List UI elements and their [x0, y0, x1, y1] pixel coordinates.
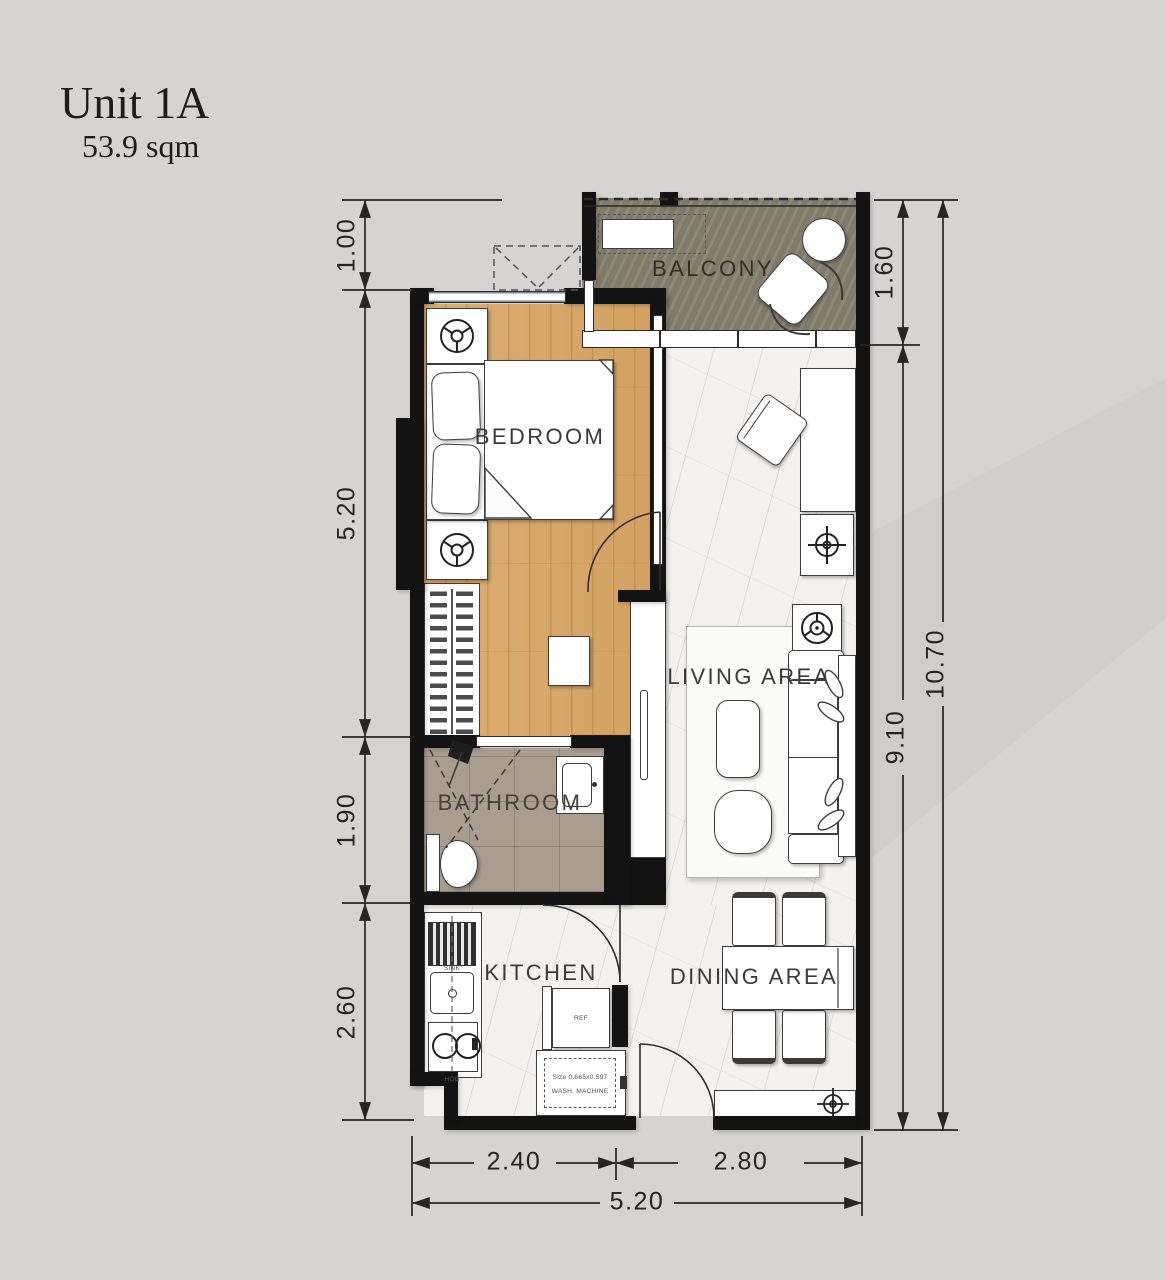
- desk: [800, 368, 856, 512]
- ac-unit: [602, 219, 674, 249]
- dimension-label: 2.40: [487, 1148, 542, 1177]
- wall: [604, 735, 630, 905]
- wardrobe-rail: [430, 589, 447, 734]
- floor-lamp-panel: [800, 514, 854, 576]
- sofa-back: [838, 655, 856, 857]
- railing-post: [660, 192, 678, 206]
- kitchen-label: KITCHEN: [484, 960, 597, 986]
- pillow: [431, 443, 481, 515]
- fridge-door: [542, 986, 552, 1050]
- wall: [424, 735, 480, 748]
- wall: [444, 1116, 636, 1130]
- wall: [410, 290, 424, 1086]
- wall: [713, 1116, 856, 1130]
- wardrobe-rail: [456, 589, 473, 734]
- balcony-table: [802, 218, 846, 262]
- tv-console: [630, 598, 666, 858]
- wall: [444, 1086, 458, 1120]
- dining-area-label: DINING AREA: [670, 964, 838, 990]
- unit-area: 53.9 sqm: [82, 128, 199, 165]
- living-area-label: LIVING AREA: [667, 664, 830, 690]
- hob-label: HOB: [444, 1075, 459, 1082]
- wall: [856, 192, 870, 1130]
- hob-burner: [455, 1033, 481, 1059]
- side-table-speaker: [792, 604, 842, 652]
- bedroom-label: BEDROOM: [475, 424, 605, 450]
- nightstand: [426, 520, 488, 580]
- bathroom-door-panel: [476, 736, 572, 747]
- pillow: [431, 371, 481, 441]
- tv: [640, 690, 648, 780]
- wall: [570, 735, 604, 748]
- toilet-tank: [426, 834, 440, 892]
- ottoman: [714, 790, 772, 854]
- unit-title: Unit 1A: [60, 76, 210, 129]
- dining-chair: [782, 1010, 826, 1064]
- wardrobe-divider: [451, 589, 453, 734]
- bathroom-label: BATHROOM: [438, 790, 583, 816]
- sink-label: SINK: [444, 964, 460, 971]
- washer-name-label: WASH. MACHINE: [552, 1087, 609, 1094]
- washer-size-label: Size 0.665x0.597: [553, 1073, 608, 1080]
- balcony-sliding-door: [582, 330, 856, 348]
- sofa-armrest: [788, 834, 844, 864]
- dimension-label: 9.10: [882, 710, 911, 765]
- dish-rack: [428, 922, 476, 966]
- dimension-label: 5.20: [610, 1188, 665, 1217]
- dining-chair: [732, 1010, 776, 1064]
- dining-chair: [782, 892, 826, 946]
- dimension-label: 1.90: [333, 793, 362, 848]
- dimension-label: 5.20: [333, 486, 362, 541]
- wall: [612, 985, 628, 1047]
- wall: [618, 590, 666, 602]
- floor-plan-page: { "title": { "unit": "Unit 1A", "area": …: [0, 0, 1166, 1280]
- corridor-cabinet: [548, 636, 590, 686]
- bedroom-window: [428, 291, 566, 303]
- washer-knob: [620, 1076, 627, 1089]
- wall: [582, 192, 596, 280]
- sofa-seat: [788, 680, 838, 834]
- bedroom-side-window: [653, 315, 663, 565]
- entry-console: [714, 1090, 856, 1118]
- washing-machine-inner: [544, 1058, 616, 1108]
- wall: [396, 418, 424, 590]
- hob-knob: [472, 1038, 477, 1050]
- dimension-label: 10.70: [922, 629, 951, 699]
- coffee-table: [716, 700, 760, 778]
- fridge-label: REF: [574, 1014, 588, 1021]
- balcony-side-glass: [584, 280, 594, 332]
- wall: [424, 892, 604, 905]
- condenser-unit: [494, 246, 580, 290]
- dimension-label: 2.80: [714, 1148, 769, 1177]
- dimension-label: 2.60: [333, 985, 362, 1040]
- sink-drain: [448, 989, 457, 998]
- dimension-label: 1.00: [333, 218, 362, 273]
- sofa-seat-seam: [789, 757, 837, 758]
- dining-chair: [732, 892, 776, 946]
- sink-faucet: [592, 782, 597, 787]
- background-watermark-band: [860, 360, 1166, 880]
- balcony-label: BALCONY: [652, 256, 774, 282]
- nightstand: [426, 308, 488, 364]
- dimension-label: 1.60: [871, 245, 900, 300]
